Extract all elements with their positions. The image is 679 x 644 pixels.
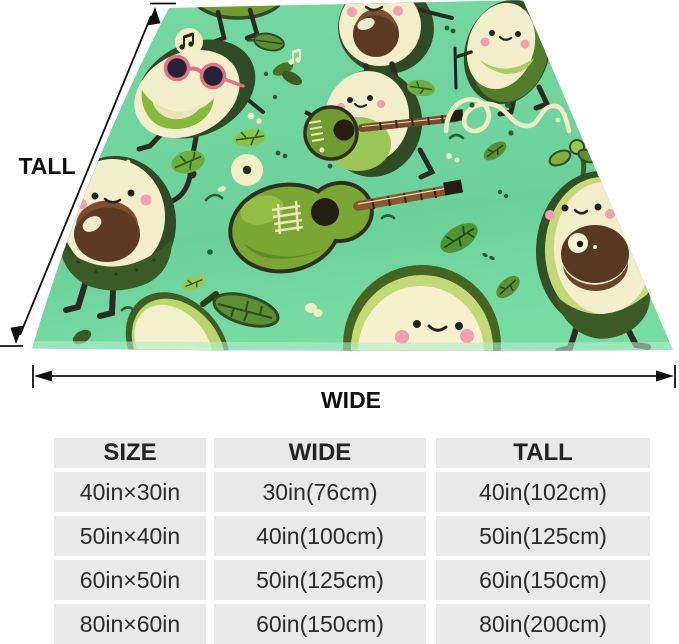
svg-text:WIDE: WIDE: [321, 387, 381, 413]
svg-text:TALL: TALL: [18, 153, 75, 179]
